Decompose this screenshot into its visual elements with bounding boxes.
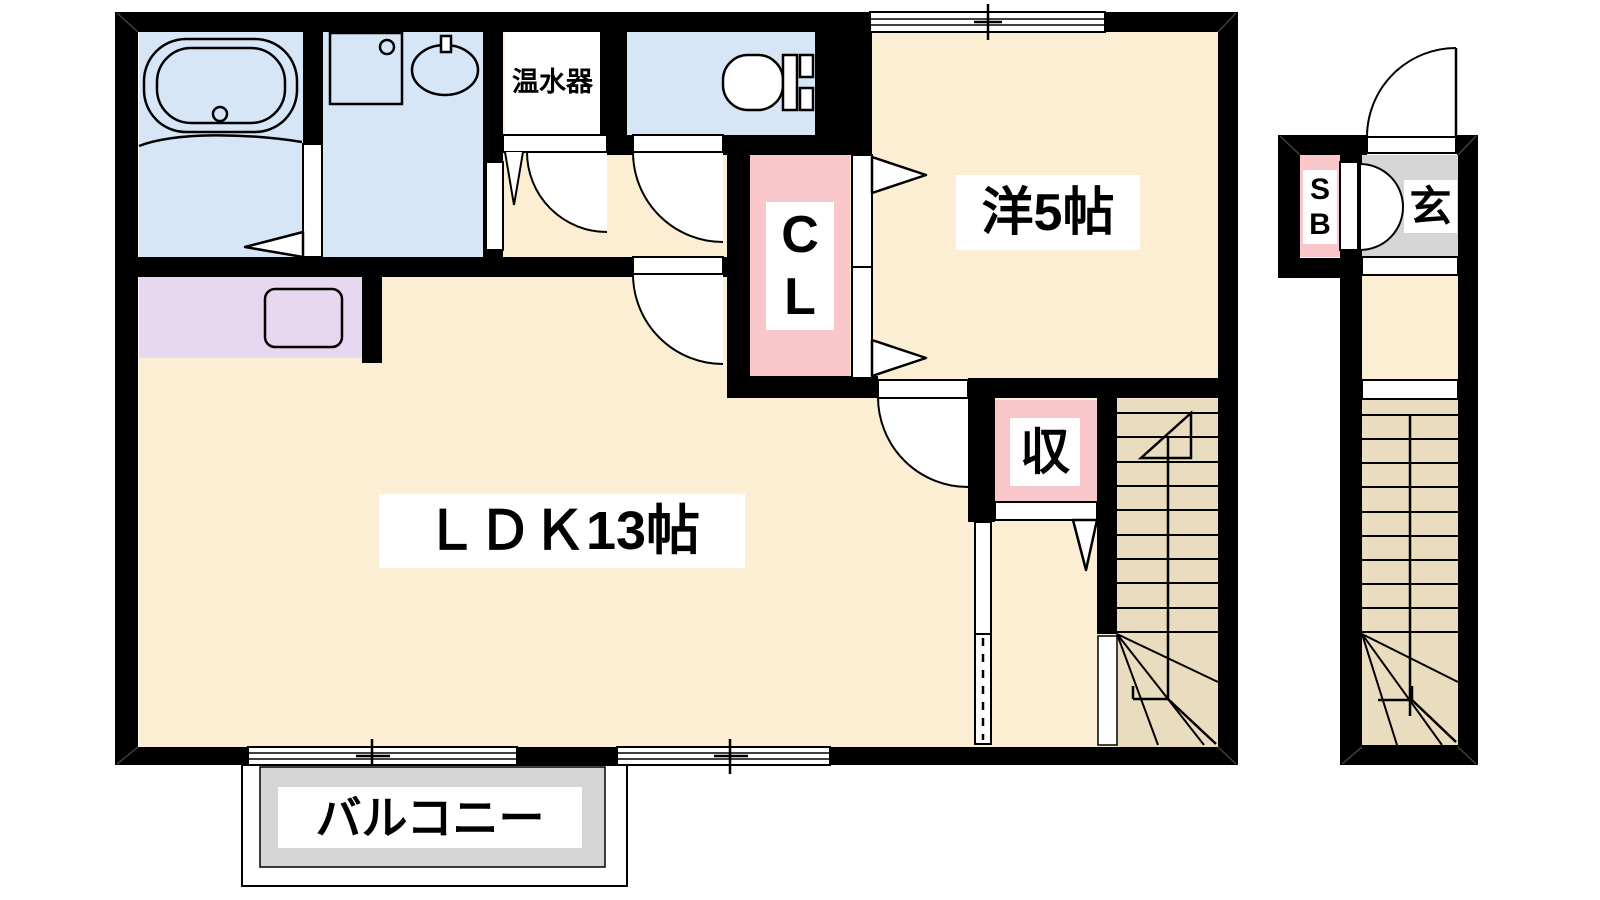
entry-door-swing	[1367, 48, 1456, 137]
label-shoebox-line1: S	[1310, 172, 1330, 207]
toilet-cistern-top-icon	[800, 55, 813, 77]
label-shoebox: S B	[1303, 170, 1337, 244]
hall-door	[633, 257, 723, 274]
label-balcony: バルコニー	[278, 787, 582, 848]
closet-door-lower	[852, 267, 872, 378]
water-heater-door	[503, 135, 607, 152]
label-shoebox-line2: B	[1309, 207, 1331, 242]
label-water-heater: 温水器	[506, 62, 599, 102]
toilet-tank-icon	[783, 55, 797, 110]
washroom-door	[486, 162, 503, 250]
closet-door-upper	[852, 155, 872, 267]
shoebox-door	[1340, 162, 1358, 250]
washroom-area	[323, 32, 485, 257]
bathroom-door	[303, 144, 322, 257]
entry-door	[1367, 137, 1456, 153]
toilet-door	[633, 135, 723, 152]
label-ldk: ＬＤＫ13帖	[379, 494, 745, 568]
storage-door	[995, 502, 1097, 520]
stairwell-landing-area	[1362, 257, 1458, 399]
stairwell-step	[1362, 380, 1458, 399]
basin-faucet-icon	[441, 36, 451, 52]
label-entrance: 玄	[1404, 180, 1457, 233]
toilet-cistern-bottom-icon	[800, 88, 813, 110]
label-closet-line1: C	[781, 204, 819, 266]
ldk-hall-door	[975, 522, 991, 634]
label-storage: 収	[1010, 418, 1080, 486]
stairs-opening	[1098, 636, 1117, 745]
western-room-door	[878, 380, 968, 398]
toilet-bowl-icon	[723, 55, 783, 110]
label-closet: C L	[766, 202, 834, 330]
label-western-room: 洋5帖	[956, 175, 1140, 250]
floor-plan-drawing	[0, 0, 1600, 900]
label-closet-line2: L	[784, 266, 816, 328]
entrance-step	[1362, 257, 1458, 275]
floor-plan: 温水器 洋5帖 C L ＬＤＫ13帖 収 バルコニー S B 玄	[0, 0, 1600, 900]
bathroom-area	[139, 32, 303, 257]
